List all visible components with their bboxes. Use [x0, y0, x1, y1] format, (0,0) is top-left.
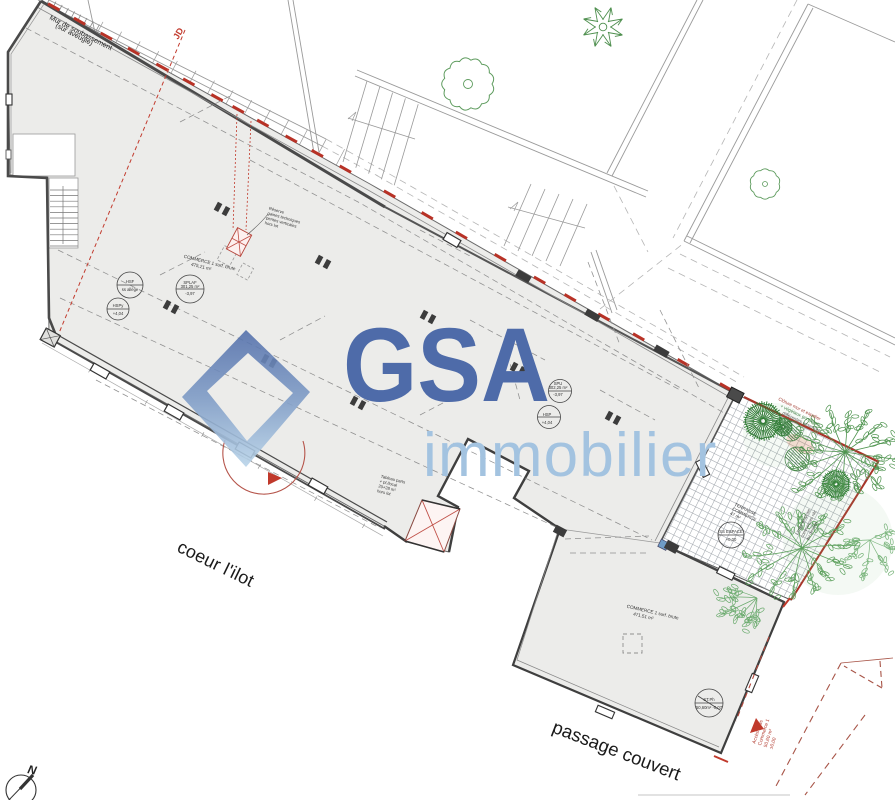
svg-text:+0,00: +0,00	[726, 537, 737, 542]
svg-text:-3,97: -3,97	[185, 291, 195, 296]
svg-text:HSF: HSF	[126, 279, 135, 284]
svg-text:SS ESPACE: SS ESPACE	[719, 529, 743, 534]
svg-text:+4,04: +4,04	[113, 311, 124, 316]
svg-text:ST.Ph: ST.Ph	[703, 697, 715, 702]
svg-text:HSPy: HSPy	[113, 303, 125, 308]
svg-text:immobilier: immobilier	[423, 421, 717, 490]
svg-text:301,25 m²: 301,25 m²	[181, 284, 200, 289]
svg-text:302,25 m²: 302,25 m²	[549, 385, 568, 390]
svg-text:GSA: GSA	[343, 307, 550, 424]
svg-text:-3,97: -3,97	[553, 392, 563, 397]
svg-text:ss allège: ss allège	[122, 287, 139, 292]
svg-text:50,60m² -0,07: 50,60m² -0,07	[696, 705, 723, 710]
